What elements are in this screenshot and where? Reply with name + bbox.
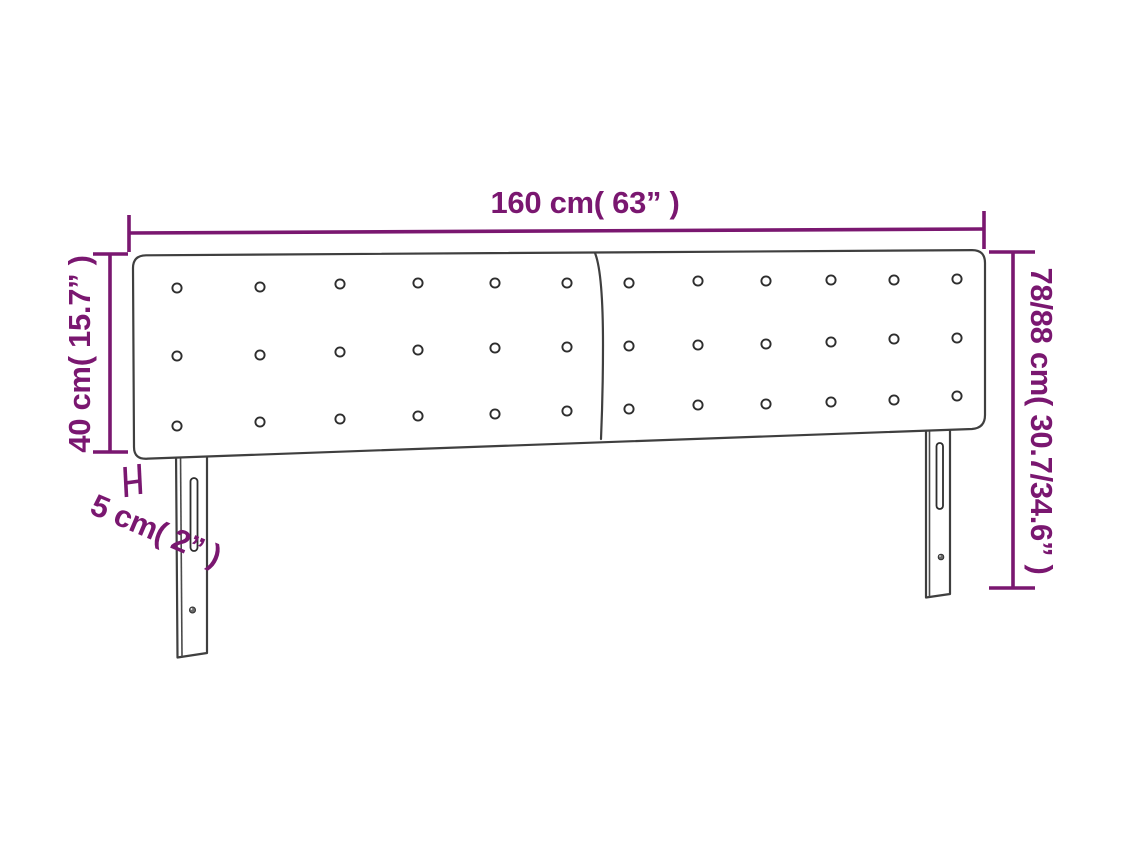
tufting-button (889, 275, 898, 284)
tufting-button (693, 340, 702, 349)
tufting-button (490, 343, 499, 352)
tufting-button (826, 275, 835, 284)
left-leg-screw (190, 607, 196, 613)
diagram-canvas: 160 cm( 63” ) 40 cm( 15.7” ) 5 cm( 2” ) … (0, 0, 1128, 846)
tufting-button (172, 421, 181, 430)
tufting-button (693, 276, 702, 285)
width-dimension-line (129, 229, 984, 233)
tufting-button (255, 350, 264, 359)
tufting-button (693, 400, 702, 409)
thickness-dimension-line (126, 481, 141, 483)
tufting-button (952, 333, 961, 342)
tufting-button (413, 278, 422, 287)
width-dimension: 160 cm( 63” ) (129, 185, 984, 252)
headboard-dimension-diagram: 160 cm( 63” ) 40 cm( 15.7” ) 5 cm( 2” ) … (0, 0, 1128, 846)
tufting-button (952, 274, 961, 283)
tufting-button (761, 399, 770, 408)
total-height-dimension-label: 78/88 cm( 30.7/34.6” ) (1024, 267, 1059, 574)
tufting-button (172, 283, 181, 292)
tufting-button (624, 404, 633, 413)
width-dimension-label: 160 cm( 63” ) (490, 185, 679, 220)
tufting-button (255, 282, 264, 291)
tufting-button (335, 279, 344, 288)
tufting-button (761, 276, 770, 285)
left-leg-screw-highlight (191, 608, 193, 610)
tufting-button (172, 351, 181, 360)
tufting-button (413, 411, 422, 420)
tufting-button (952, 391, 961, 400)
tufting-button (490, 409, 499, 418)
tufting-button (761, 339, 770, 348)
right-leg-screw (938, 554, 944, 560)
total-height-dimension: 78/88 cm( 30.7/34.6” ) (989, 252, 1059, 588)
headboard-drawing (133, 250, 985, 657)
right-leg (926, 422, 950, 598)
tufting-button (562, 278, 571, 287)
tufting-button (562, 342, 571, 351)
tufting-button (335, 347, 344, 356)
panel-height-dimension-label: 40 cm( 15.7” ) (62, 255, 97, 452)
tufting-button (624, 341, 633, 350)
tufting-button (624, 278, 633, 287)
tufting-button (889, 395, 898, 404)
tufting-button (335, 414, 344, 423)
tufting-button (255, 417, 264, 426)
thickness-tick-right (139, 464, 141, 494)
right-leg-slot (937, 443, 944, 509)
tufting-button (826, 337, 835, 346)
tufting-button (562, 406, 571, 415)
tufting-button (889, 334, 898, 343)
tufting-button (826, 397, 835, 406)
tufting-button (413, 345, 422, 354)
panel-height-dimension: 40 cm( 15.7” ) (62, 254, 128, 453)
tufting-button (490, 278, 499, 287)
right-leg-screw-highlight (939, 555, 941, 557)
